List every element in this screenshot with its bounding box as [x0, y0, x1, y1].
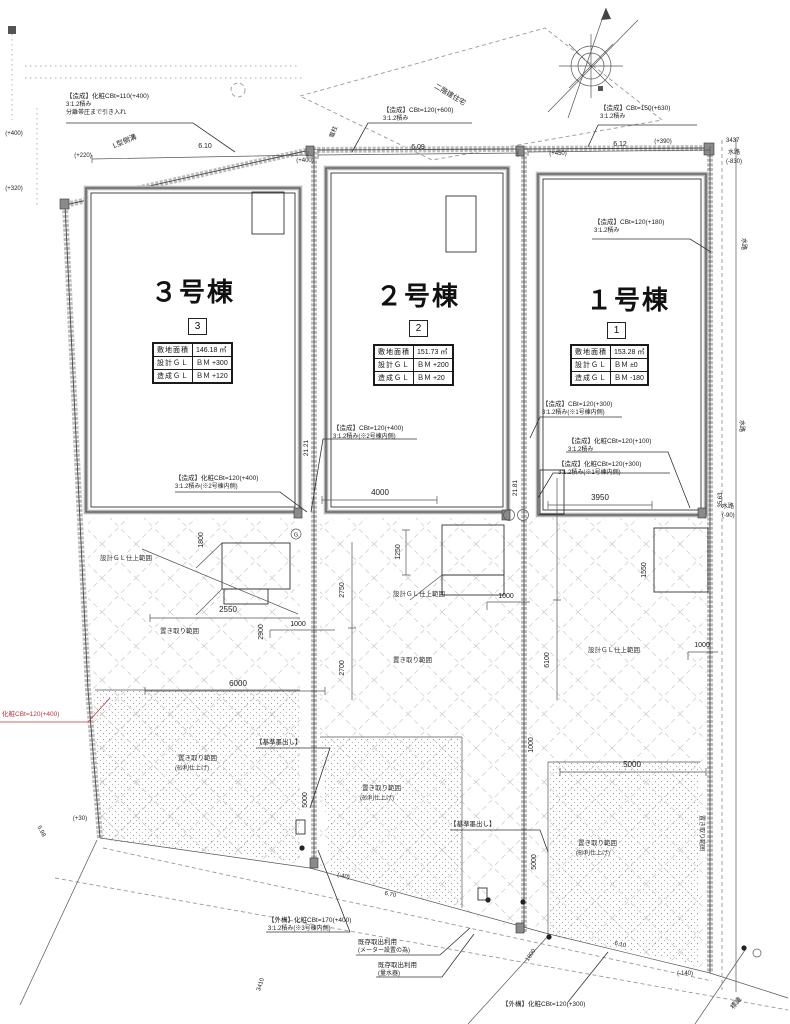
- building-3-info-table: 敷地面積 146.18 ㎡ 設計ＧＬ ＢＭ +300 造成ＧＬ ＢＭ +120: [152, 342, 233, 384]
- dim-1250: 1250: [395, 544, 402, 560]
- callout-topmid-line2: 3:1.2積み: [383, 114, 408, 122]
- dim-5000-c: 5000: [531, 854, 538, 870]
- area-label-cell: 敷地面積: [153, 343, 193, 357]
- dim-2900: 2900: [258, 624, 265, 640]
- callout-b4: 【外構】化粧CBt=120(+300): [502, 999, 585, 1008]
- grading-gl-value-cell: ＢＭ -180: [611, 372, 649, 386]
- area-label-removal-bl-1: 置き取り範囲: [178, 753, 217, 762]
- table-row: 敷地面積 153.28 ㎡: [571, 345, 648, 359]
- building-3-number: 3: [188, 318, 207, 335]
- area-label-cell: 敷地面積: [571, 345, 611, 359]
- building-1-info-table: 敷地面積 153.28 ㎡ 設計ＧＬ ＢＭ ±0 造成ＧＬ ＢＭ -180: [570, 344, 649, 386]
- callout-b2-line2: (メーター設置の為): [358, 946, 410, 954]
- callout-r2c-line2: 3:1.2積み(※1号棟内側): [558, 468, 621, 476]
- building-2-info-table: 敷地面積 151.73 ㎡ 設計ＧＬ ＢＭ +200 造成ＧＬ ＢＭ +20: [373, 344, 454, 386]
- callout-b1-line2: 3:1.2積み(※3号棟内側): [268, 924, 331, 932]
- building-1-title: １号棟: [553, 280, 703, 317]
- area-value-cell: 146.18 ㎡: [193, 343, 232, 357]
- dim-top-610: 6.10: [198, 143, 212, 150]
- dim-4000: 4000: [371, 488, 389, 497]
- design-gl-label-cell: 設計ＧＬ: [374, 359, 414, 372]
- table-row: 造成ＧＬ ＢＭ +20: [374, 372, 453, 386]
- label-utility-pole: 電柱: [328, 125, 340, 139]
- design-gl-value-cell: ＢＭ +200: [414, 359, 453, 372]
- table-row: 造成ＧＬ ＢＭ -180: [571, 372, 648, 386]
- callout-b2-line1: 既存取出利用: [358, 937, 397, 946]
- level-plus400a: (+400): [296, 158, 314, 164]
- level-plus390: (+390): [654, 139, 672, 145]
- dim-1000-d: 1000: [528, 737, 535, 753]
- grading-gl-label-cell: 造成ＧＬ: [153, 370, 193, 384]
- callout-topleft-line2: 3:1.2積み: [66, 100, 91, 108]
- dim-6100: 6100: [544, 652, 551, 668]
- label-two-story-house: 二階建住宅: [433, 81, 468, 107]
- grading-gl-value-cell: ＢＭ +20: [414, 372, 453, 386]
- callout-r2a-line1: 【造成】CBt=120(+300): [542, 399, 612, 408]
- dim-3410: 3410: [256, 977, 266, 992]
- dim-1800: 1800: [198, 532, 205, 548]
- dim-5000-b: 5000: [302, 792, 309, 808]
- callout-m2b-line2: 3:1.2積み(※2号棟内側): [175, 482, 238, 490]
- plan-canvas: 【造成】化粧CBt=110(+400) 3:1.2積み 分離帯圧まで引き入れ 【…: [0, 0, 790, 1024]
- level-plus320: (+320): [5, 186, 23, 192]
- label-road-sign: 標識: [728, 995, 744, 1011]
- design-gl-label-cell: 設計ＧＬ: [571, 359, 611, 372]
- callout-m2b-line1: 【造成】化粧CBt=120(+400): [175, 473, 258, 482]
- callout-r2c-line1: 【造成】化粧CBt=120(+300): [558, 459, 641, 468]
- area-label-removal-mb-1: 置き取り範囲: [362, 783, 401, 792]
- dim-1000-c: 1000: [694, 642, 710, 649]
- level-plus220: (+220): [74, 153, 92, 159]
- building-1-number: 1: [607, 322, 626, 339]
- marker-g-label: G: [294, 533, 298, 539]
- building-2-outline: [326, 168, 508, 512]
- dim-2181: 21.81: [512, 479, 519, 496]
- callout-r2b-line2: 3:1.2積み: [568, 445, 593, 453]
- dim-1000-a: 1000: [290, 621, 306, 628]
- dim-2700: 2700: [339, 660, 346, 676]
- callout-b1-line1: 【外構】化粧CBt=170(+400): [268, 915, 351, 924]
- callout-b3-line1: 既存取出利用: [378, 960, 417, 969]
- area-label-removal-bl-2: (砂利仕上げ): [175, 764, 209, 772]
- callout-m2a-line1: 【造成】CBt=120(+400): [333, 423, 403, 432]
- area-label-removal-rb-1: 置き取り範囲: [578, 838, 617, 847]
- dim-6000: 6000: [229, 679, 247, 688]
- callout-r1-line2: 3:1.2積み: [594, 226, 619, 234]
- area-label-finish-left: 設計ＧＬ仕上範囲: [100, 553, 152, 562]
- callout-b3-line2: (量水器): [378, 969, 400, 977]
- grading-gl-label-cell: 造成ＧＬ: [374, 372, 414, 386]
- building-2-title: ２号棟: [343, 276, 493, 313]
- table-row: 敷地面積 146.18 ㎡: [153, 343, 232, 357]
- dim-top-609: 6.09: [411, 144, 425, 151]
- table-row: 造成ＧＬ ＢＭ +120: [153, 370, 232, 384]
- area-label-finish-right: 設計ＧＬ仕上範囲: [588, 645, 640, 654]
- level-plus30: (+30): [73, 816, 87, 822]
- dim-2121: 21.21: [303, 439, 310, 456]
- callout-r2b-line1: 【造成】化粧CBt=120(+100): [568, 436, 651, 445]
- level-minus830: (-830): [726, 159, 742, 165]
- ground-hatch-regions: [88, 518, 708, 970]
- dim-2550: 2550: [219, 605, 237, 614]
- grading-gl-label-cell: 造成ＧＬ: [571, 372, 611, 386]
- area-label-removal-mb-2: (砂利仕上げ): [360, 794, 394, 802]
- design-gl-value-cell: ＢＭ ±0: [611, 359, 649, 372]
- dim-1000-b: 1000: [498, 593, 514, 600]
- dim-5000-a: 5000: [623, 760, 641, 769]
- label-l-gutter: L型側溝: [111, 132, 137, 150]
- callout-r1-line1: 【造成】CBt=120(+180): [594, 217, 664, 226]
- area-label-removal-rb-2: (砂利仕上げ): [576, 849, 610, 857]
- compass-rose-icon: [548, 8, 638, 118]
- level-minus90: (-90): [722, 513, 735, 519]
- area-label-removal-left: 置き取り範囲: [160, 626, 199, 635]
- dim-1800-b: 1800: [525, 948, 538, 963]
- area-label-finish-mid: 設計ＧＬ仕上範囲: [393, 589, 445, 598]
- level-plus400b: (+400): [5, 131, 23, 137]
- site-plan-drawing: 【造成】化粧CBt=110(+400) 3:1.2積み 分離帯圧まで引き入れ 【…: [0, 0, 790, 1024]
- level-minus40: (-40): [337, 872, 351, 881]
- dim-3437: 3437: [726, 138, 740, 144]
- area-label-removal-rightcol: 置き取り範囲: [698, 815, 706, 851]
- dim-598: 5.98: [35, 825, 46, 839]
- callout-red-cb: 化粧CBt=120(+400): [2, 709, 59, 718]
- level-plus450: (+450): [549, 151, 567, 157]
- table-row: 設計ＧＬ ＢＭ +300: [153, 357, 232, 370]
- callout-kijun-1: 【基準墨出し】: [256, 737, 302, 746]
- callout-topleft-line1: 【造成】化粧CBt=110(+400): [66, 91, 149, 100]
- design-gl-value-cell: ＢＭ +300: [193, 357, 232, 370]
- building-2-number: 2: [409, 320, 428, 337]
- label-waterway-2: 水路: [740, 238, 748, 250]
- area-label-removal-mid: 置き取り範囲: [393, 655, 432, 664]
- callout-topmid-line1: 【造成】CBt=120(+600): [383, 105, 453, 114]
- table-row: 敷地面積 151.73 ㎡: [374, 345, 453, 359]
- table-row: 設計ＧＬ ＢＭ ±0: [571, 359, 648, 372]
- design-gl-label-cell: 設計ＧＬ: [153, 357, 193, 370]
- level-minus140: (-140): [677, 971, 693, 977]
- area-value-cell: 153.28 ㎡: [611, 345, 649, 359]
- callout-m2a-line2: 3:1.2積み(※2号棟内側): [333, 432, 396, 440]
- area-value-cell: 151.73 ㎡: [414, 345, 453, 359]
- callout-r2a-line2: 3:1.2積み(※1号棟内側): [542, 408, 605, 416]
- callout-topright-line2: 3:1.2積み: [600, 112, 625, 120]
- label-waterway-4: 水路: [722, 502, 734, 510]
- building-3-title: ３号棟: [118, 272, 268, 309]
- label-waterway-3: 水路: [738, 420, 746, 432]
- grading-gl-value-cell: ＢＭ +120: [193, 370, 232, 384]
- dim-3950: 3950: [591, 493, 609, 502]
- label-waterway-1: 水路: [728, 148, 740, 156]
- callout-topright-line1: 【造成】CBt=150(+630): [600, 103, 670, 112]
- table-row: 設計ＧＬ ＢＭ +200: [374, 359, 453, 372]
- dim-top-612: 6.12: [613, 141, 627, 148]
- callout-topleft-line3: 分離帯圧まで引き入れ: [66, 108, 126, 116]
- callout-kijun-2: 【基準墨出し】: [450, 819, 496, 828]
- dim-1550: 1550: [641, 562, 648, 578]
- dim-2750: 2750: [339, 582, 346, 598]
- area-label-cell: 敷地面積: [374, 345, 414, 359]
- dim-670: 6.70: [384, 891, 397, 899]
